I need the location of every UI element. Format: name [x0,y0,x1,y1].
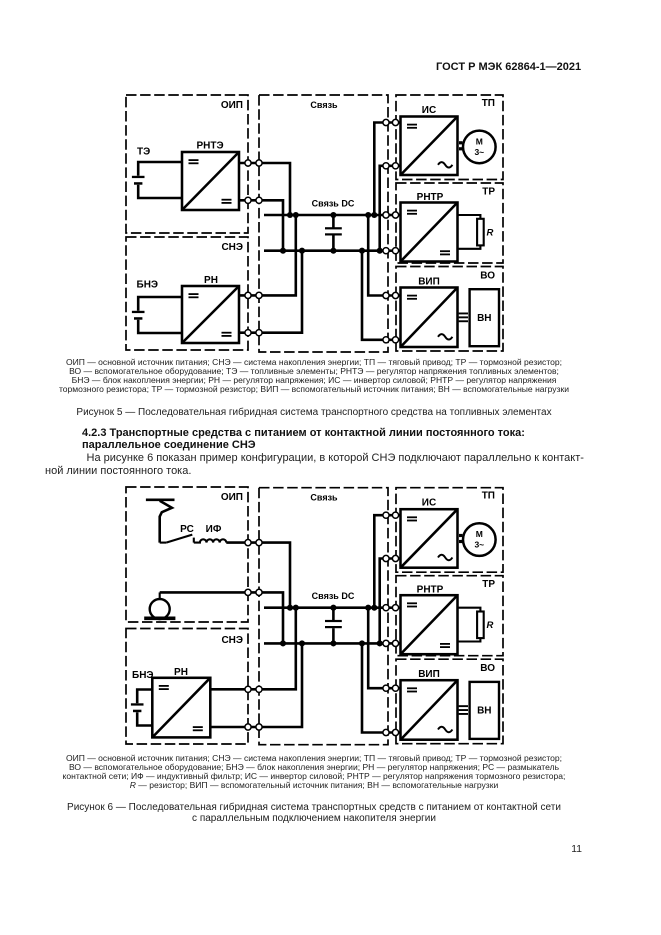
svg-text:ВИП: ВИП [418,669,440,680]
svg-text:ТР: ТР [482,187,495,198]
svg-text:ТП: ТП [482,98,495,109]
svg-text:ТР: ТР [482,579,495,590]
svg-text:R: R [487,620,494,631]
svg-text:РНТЭ: РНТЭ [196,141,223,152]
svg-text:ВО: ВО [480,271,495,282]
svg-text:БНЭ: БНЭ [137,280,159,291]
svg-text:3~: 3~ [474,147,484,157]
svg-text:ВН: ВН [477,313,491,324]
svg-text:РС: РС [180,524,194,535]
svg-text:3~: 3~ [474,540,484,550]
svg-text:ВИП: ВИП [418,277,440,288]
svg-text:ИФ: ИФ [206,524,222,535]
svg-text:М: М [476,137,483,147]
svg-text:РН: РН [204,275,218,286]
svg-text:ВО: ВО [480,663,495,674]
svg-text:Связь: Связь [310,100,338,110]
svg-text:РН: РН [174,667,188,678]
svg-text:РНТР: РНТР [417,192,444,203]
svg-text:БНЭ: БНЭ [132,670,154,681]
svg-text:Связь DC: Связь DC [312,199,355,209]
svg-text:Связь: Связь [310,493,338,503]
svg-text:ТЭ: ТЭ [137,147,150,158]
svg-text:ВН: ВН [477,706,491,717]
svg-text:РНТР: РНТР [417,585,444,596]
svg-text:R: R [487,228,494,239]
svg-text:ОИП: ОИП [221,100,243,111]
svg-text:ИС: ИС [422,105,436,116]
svg-text:Связь DC: Связь DC [312,591,355,601]
svg-text:ОИП: ОИП [221,492,243,503]
svg-text:М: М [476,529,483,539]
svg-text:ИС: ИС [422,498,436,509]
svg-text:ТП: ТП [482,491,495,502]
svg-text:СНЭ: СНЭ [221,242,243,253]
svg-text:СНЭ: СНЭ [221,635,243,646]
